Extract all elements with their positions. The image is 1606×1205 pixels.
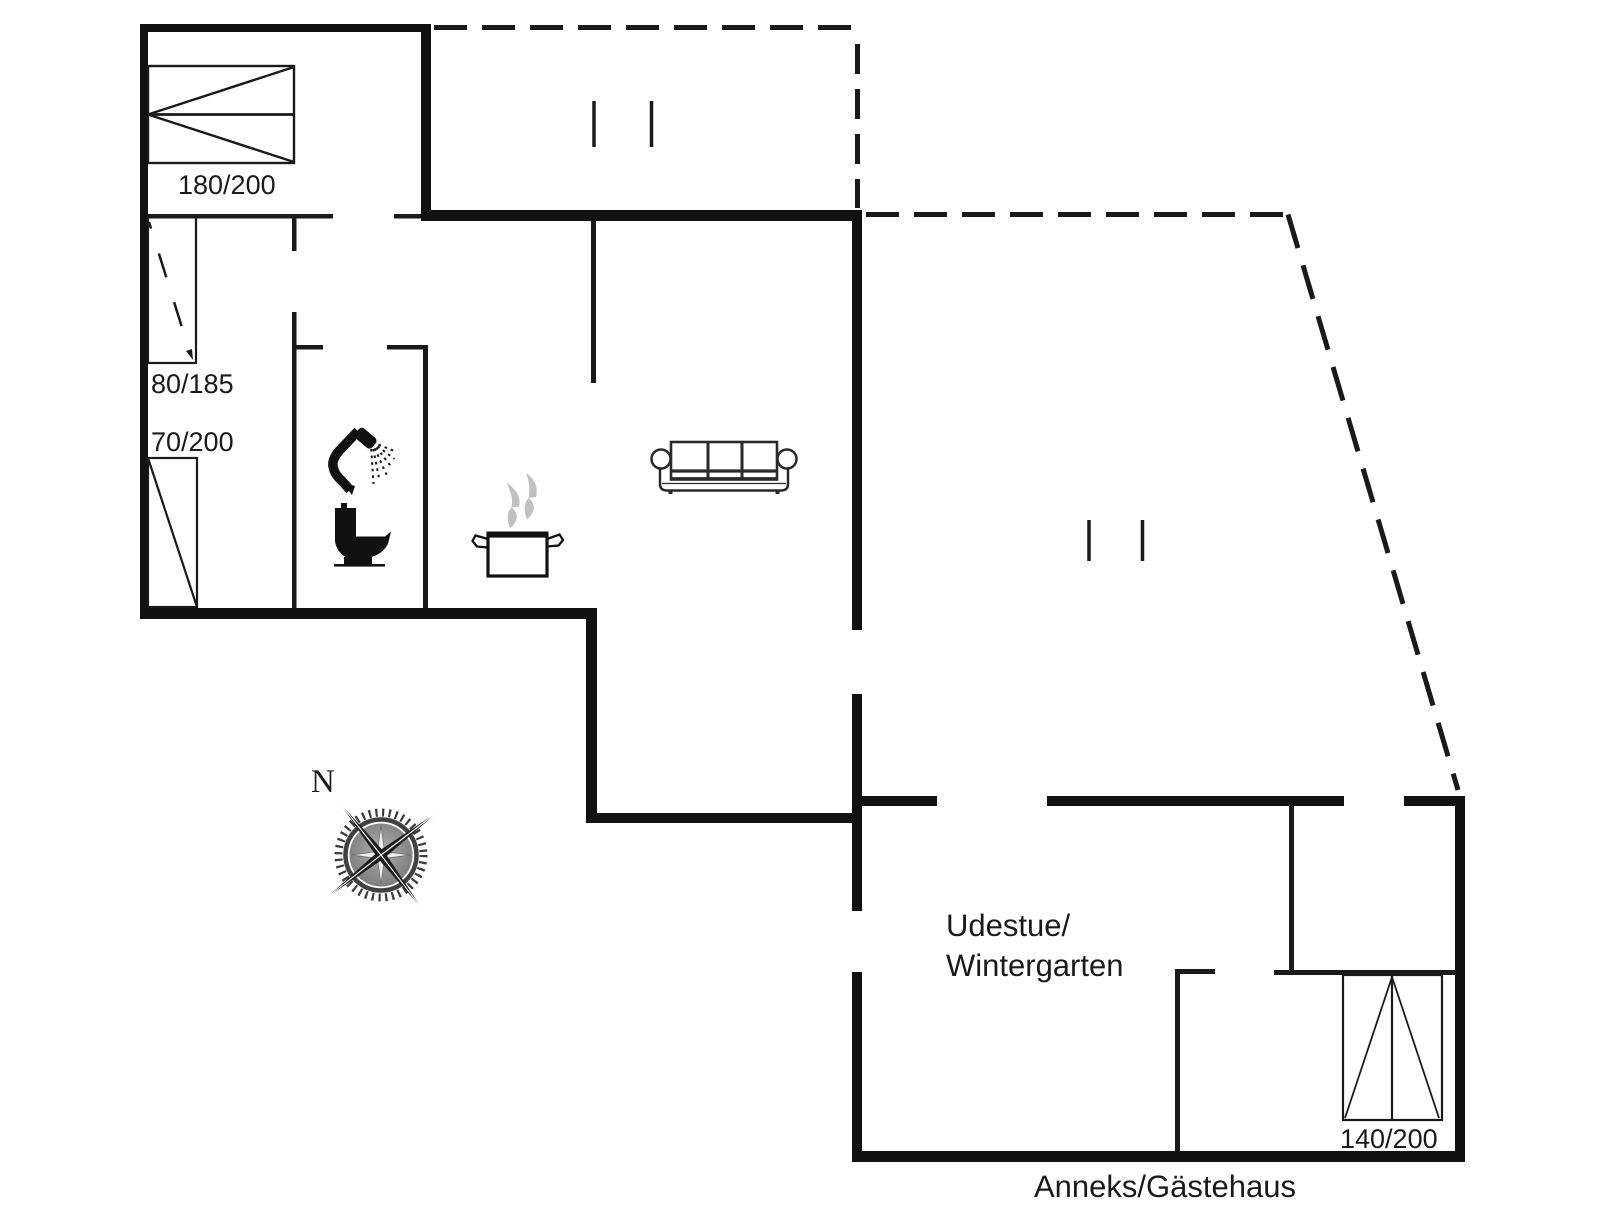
svg-text:N: N [311,764,335,800]
svg-text:Anneks/Gästehaus: Anneks/Gästehaus [1034,1169,1296,1204]
svg-text:80/185: 80/185 [151,369,234,399]
svg-text:70/200: 70/200 [151,427,234,457]
svg-text:Wintergarten: Wintergarten [946,948,1123,983]
svg-text:140/200: 140/200 [1340,1124,1438,1154]
svg-text:180/200: 180/200 [178,170,276,200]
svg-text:Udestue/: Udestue/ [946,908,1070,943]
